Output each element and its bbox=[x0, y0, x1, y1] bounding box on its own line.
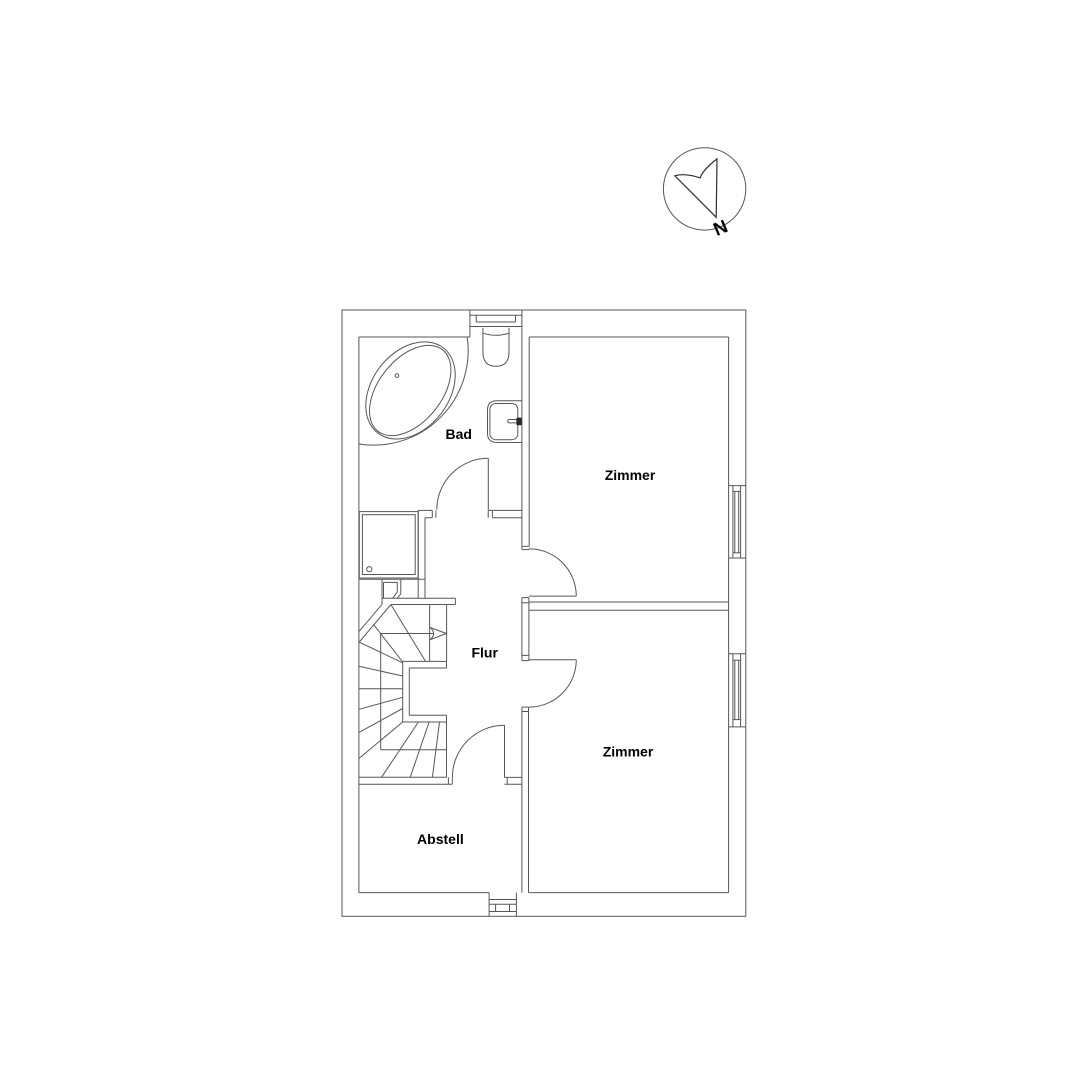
svg-text:Abstell: Abstell bbox=[417, 831, 464, 847]
svg-text:Zimmer: Zimmer bbox=[605, 467, 656, 483]
svg-text:Zimmer: Zimmer bbox=[603, 743, 654, 759]
svg-text:Bad: Bad bbox=[445, 426, 471, 442]
svg-text:Flur: Flur bbox=[471, 644, 498, 660]
